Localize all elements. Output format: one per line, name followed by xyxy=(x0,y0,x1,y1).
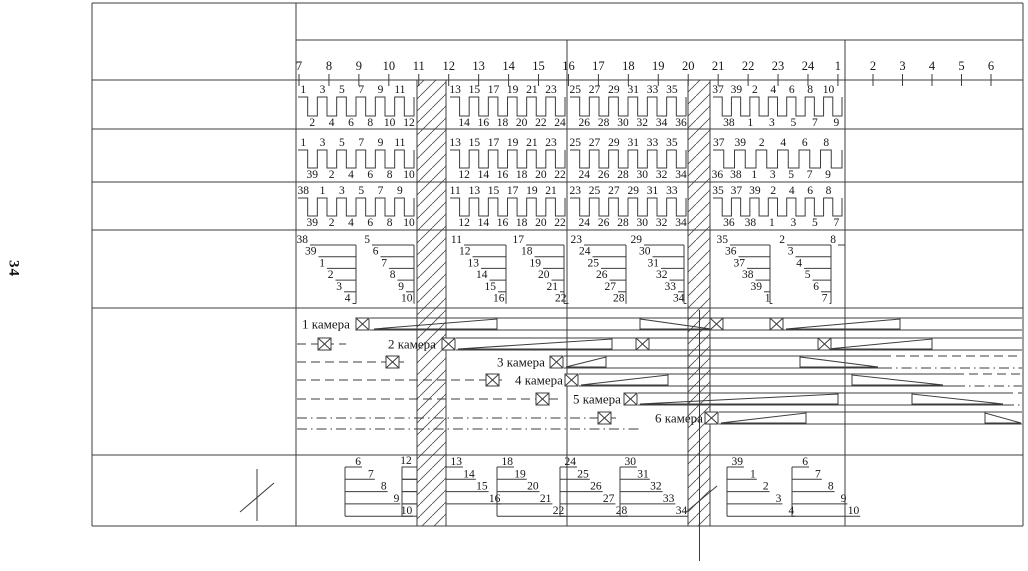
fan-group-number: 17 xyxy=(513,234,525,246)
comb-number-bottom: 34 xyxy=(675,169,687,181)
drawing-canvas: 34 7891011121314151617181920212223241234… xyxy=(0,0,1028,571)
chamber-label: 2 камера xyxy=(388,337,436,352)
comb-number-bottom: 14 xyxy=(478,217,490,229)
ruler-number: 10 xyxy=(383,59,396,73)
comb-number-top: 7 xyxy=(358,84,364,96)
ruler-number: 17 xyxy=(592,59,605,73)
comb-number-top: 13 xyxy=(449,84,461,96)
ruler-number: 7 xyxy=(296,59,302,73)
fan-group-number: 25 xyxy=(588,257,600,269)
bottom-group-number: 1 xyxy=(750,468,756,480)
bottom-group-number: 39 xyxy=(732,456,744,468)
comb-number-top: 17 xyxy=(488,137,500,149)
fan-group-number: 28 xyxy=(613,293,625,305)
ladder-rung xyxy=(402,479,417,491)
bottom-group-number: 32 xyxy=(650,481,662,493)
comb-number-bottom: 12 xyxy=(458,217,470,229)
bottom-group-number: 9 xyxy=(841,493,847,505)
fan-group-number: 4 xyxy=(345,293,351,305)
bottom-group-number: 20 xyxy=(527,481,539,493)
comb-outline xyxy=(570,97,686,116)
fan-group-number: 1 xyxy=(319,257,325,269)
comb-number-bottom: 36 xyxy=(675,117,687,129)
chamber-label: 1 камера xyxy=(302,317,350,332)
bottom-group-number: 34 xyxy=(676,505,688,517)
comb-number-top: 29 xyxy=(627,185,639,197)
technical-drawing: 7891011121314151617181920212223241234561… xyxy=(0,0,1028,571)
comb-number-top: 10 xyxy=(823,84,835,96)
wedge-shape xyxy=(786,319,900,329)
fan-group-number: 6 xyxy=(813,281,819,293)
comb-number-bottom: 7 xyxy=(812,117,818,129)
comb-number-bottom: 9 xyxy=(834,117,840,129)
fan-group-number: 3 xyxy=(336,281,342,293)
comb-number-bottom: 4 xyxy=(348,169,354,181)
comb-number-bottom: 34 xyxy=(656,117,668,129)
comb-number-bottom: 36 xyxy=(712,169,724,181)
comb-number-bottom: 14 xyxy=(478,169,490,181)
comb-number-top: 2 xyxy=(759,137,765,149)
fan-group-number: 7 xyxy=(822,293,828,305)
comb-number-bottom: 5 xyxy=(812,217,818,229)
comb-number-top: 3 xyxy=(320,137,326,149)
comb-number-bottom: 5 xyxy=(788,169,794,181)
chamber-label: 3 камера xyxy=(497,355,545,370)
bottom-group-number: 22 xyxy=(553,505,565,517)
comb-number-bottom: 26 xyxy=(598,217,610,229)
comb-number-bottom: 22 xyxy=(535,117,547,129)
comb-number-top: 25 xyxy=(589,185,601,197)
comb-number-bottom: 10 xyxy=(403,169,415,181)
comb-number-bottom: 32 xyxy=(637,117,649,129)
comb-number-bottom: 12 xyxy=(458,169,470,181)
comb-number-top: 23 xyxy=(569,185,581,197)
comb-number-top: 9 xyxy=(378,84,384,96)
comb-number-bottom: 16 xyxy=(497,169,509,181)
ruler-number: 11 xyxy=(413,59,425,73)
ruler-number: 16 xyxy=(562,59,575,73)
fan-group-number: 31 xyxy=(648,257,660,269)
comb-number-bottom: 4 xyxy=(348,217,354,229)
comb-number-bottom: 2 xyxy=(309,117,315,129)
fan-group-number: 29 xyxy=(631,234,643,246)
comb-number-bottom: 22 xyxy=(554,217,566,229)
ladder-rung xyxy=(402,467,417,479)
bottom-group-number: 4 xyxy=(788,505,794,517)
wedge-shape xyxy=(985,413,1021,423)
comb-number-top: 1 xyxy=(300,84,306,96)
comb-number-top: 33 xyxy=(666,185,678,197)
comb-number-top: 13 xyxy=(449,137,461,149)
comb-number-bottom: 30 xyxy=(617,117,629,129)
comb-number-bottom: 4 xyxy=(329,117,335,129)
comb-number-bottom: 24 xyxy=(579,217,591,229)
comb-number-top: 8 xyxy=(807,84,813,96)
comb-outline xyxy=(450,198,565,216)
comb-number-top: 2 xyxy=(770,185,776,197)
comb-number-top: 5 xyxy=(339,84,345,96)
comb-number-top: 21 xyxy=(526,137,538,149)
fan-group-number: 18 xyxy=(521,246,533,258)
comb-number-top: 7 xyxy=(358,137,364,149)
comb-number-bottom: 5 xyxy=(791,117,797,129)
comb-number-top: 37 xyxy=(731,185,743,197)
bottom-group-number: 16 xyxy=(489,493,501,505)
comb-number-top: 27 xyxy=(589,84,601,96)
ladder-rung xyxy=(402,492,417,504)
fan-group-number: 5 xyxy=(364,234,370,246)
comb-number-bottom: 18 xyxy=(497,117,509,129)
comb-number-top: 33 xyxy=(647,84,659,96)
comb-number-top: 31 xyxy=(627,84,639,96)
comb-number-bottom: 26 xyxy=(579,117,591,129)
bottom-group-number: 2 xyxy=(763,481,769,493)
ruler-number: 19 xyxy=(652,59,665,73)
comb-number-bottom: 18 xyxy=(516,169,528,181)
comb-number-top: 25 xyxy=(569,137,581,149)
comb-number-top: 25 xyxy=(569,84,581,96)
fan-group-number: 38 xyxy=(297,234,309,246)
fan-group-number: 24 xyxy=(579,246,591,258)
comb-outline xyxy=(713,97,842,116)
fan-group-number: 16 xyxy=(493,293,505,305)
wedge-shape xyxy=(800,357,878,367)
bottom-group-number: 24 xyxy=(565,456,577,468)
comb-number-top: 29 xyxy=(608,137,620,149)
hatch-strip xyxy=(417,80,446,526)
comb-outline xyxy=(570,150,686,168)
comb-number-top: 29 xyxy=(608,84,620,96)
comb-number-bottom: 38 xyxy=(723,117,735,129)
wedge-shape xyxy=(566,357,606,367)
comb-number-top: 39 xyxy=(749,185,761,197)
comb-number-bottom: 26 xyxy=(598,169,610,181)
comb-number-bottom: 14 xyxy=(458,117,470,129)
ruler-number: 9 xyxy=(356,59,362,73)
ruler-number: 3 xyxy=(899,59,905,73)
comb-number-top: 13 xyxy=(469,185,481,197)
comb-number-top: 37 xyxy=(712,84,724,96)
wedge-shape xyxy=(828,339,932,349)
fan-group-number: 4 xyxy=(796,257,802,269)
bottom-group-number: 15 xyxy=(476,481,488,493)
comb-number-top: 11 xyxy=(450,185,461,197)
comb-number-bottom: 8 xyxy=(367,117,373,129)
comb-number-top: 6 xyxy=(807,185,813,197)
comb-number-top: 4 xyxy=(789,185,795,197)
ruler-number: 24 xyxy=(802,59,815,73)
comb-number-top: 11 xyxy=(394,84,405,96)
comb-number-top: 7 xyxy=(378,185,384,197)
fan-group-number: 14 xyxy=(476,269,488,281)
comb-outline xyxy=(298,198,414,216)
fan-group-number: 8 xyxy=(390,269,396,281)
comb-outline xyxy=(298,150,414,168)
fan-group-number: 19 xyxy=(530,257,542,269)
bottom-group-number: 18 xyxy=(502,456,514,468)
comb-number-bottom: 16 xyxy=(478,117,490,129)
comb-outline xyxy=(298,97,414,116)
bottom-group-number: 33 xyxy=(663,493,675,505)
comb-number-top: 15 xyxy=(469,84,481,96)
comb-number-top: 21 xyxy=(545,185,557,197)
bottom-group-number: 13 xyxy=(451,456,463,468)
fan-group-number: 21 xyxy=(547,281,559,293)
comb-number-top: 27 xyxy=(589,137,601,149)
fan-group-number: 20 xyxy=(538,269,550,281)
comb-number-top: 1 xyxy=(320,185,326,197)
bottom-group-number: 8 xyxy=(828,481,834,493)
fan-group-number: 38 xyxy=(742,269,754,281)
fan-group-number: 11 xyxy=(451,234,462,246)
comb-number-bottom: 10 xyxy=(403,217,415,229)
comb-number-top: 15 xyxy=(488,185,500,197)
comb-number-top: 33 xyxy=(647,137,659,149)
bottom-group-number: 28 xyxy=(616,505,628,517)
bottom-group-number: 7 xyxy=(815,468,821,480)
ruler-number: 5 xyxy=(958,59,964,73)
ruler-number: 6 xyxy=(988,59,994,73)
comb-number-bottom: 1 xyxy=(751,169,757,181)
bottom-group-number: 7 xyxy=(368,468,374,480)
comb-number-bottom: 10 xyxy=(384,117,396,129)
bottom-group-number: 19 xyxy=(514,468,526,480)
comb-number-top: 5 xyxy=(358,185,364,197)
comb-number-bottom: 20 xyxy=(535,169,547,181)
comb-number-bottom: 24 xyxy=(579,169,591,181)
fan-group-number: 32 xyxy=(656,269,668,281)
fan-group-number: 3 xyxy=(788,246,794,258)
comb-number-top: 17 xyxy=(507,185,519,197)
comb-number-bottom: 2 xyxy=(329,217,335,229)
ruler-number: 15 xyxy=(532,59,545,73)
comb-number-bottom: 1 xyxy=(769,217,775,229)
comb-outline xyxy=(713,150,842,168)
comb-number-bottom: 7 xyxy=(834,217,840,229)
comb-number-top: 6 xyxy=(789,84,795,96)
comb-number-top: 1 xyxy=(300,137,306,149)
comb-number-top: 27 xyxy=(608,185,620,197)
comb-number-bottom: 30 xyxy=(637,217,649,229)
comb-number-bottom: 6 xyxy=(367,169,373,181)
comb-number-bottom: 22 xyxy=(554,169,566,181)
bottom-group-number: 25 xyxy=(577,468,589,480)
bottom-group-number: 26 xyxy=(590,481,602,493)
comb-outline xyxy=(450,150,565,168)
bottom-group-number: 9 xyxy=(394,493,400,505)
chamber-label: 4 камера xyxy=(515,373,563,388)
page-number-label: 34 xyxy=(5,256,22,282)
comb-number-top: 38 xyxy=(297,185,309,197)
comb-number-top: 3 xyxy=(320,84,326,96)
bottom-group-number: 27 xyxy=(603,493,615,505)
fan-group-number: 23 xyxy=(571,234,583,246)
comb-number-bottom: 9 xyxy=(825,169,831,181)
comb-number-bottom: 32 xyxy=(656,169,668,181)
wedge-shape xyxy=(721,413,806,423)
fan-group-number: 9 xyxy=(398,281,404,293)
fan-group-number: 27 xyxy=(605,281,617,293)
comb-number-top: 39 xyxy=(731,84,743,96)
comb-number-top: 35 xyxy=(666,84,678,96)
comb-number-top: 11 xyxy=(394,137,405,149)
ruler-number: 20 xyxy=(682,59,695,73)
comb-number-top: 9 xyxy=(378,137,384,149)
wedge-shape xyxy=(458,339,612,349)
ladder-label: 12 xyxy=(400,455,412,467)
chamber-label: 6 камера xyxy=(655,411,703,426)
comb-number-top: 19 xyxy=(526,185,538,197)
comb-outline xyxy=(713,198,842,216)
comb-number-bottom: 3 xyxy=(791,217,797,229)
comb-number-top: 8 xyxy=(826,185,832,197)
comb-number-top: 19 xyxy=(507,84,519,96)
comb-number-bottom: 6 xyxy=(348,117,354,129)
comb-number-bottom: 38 xyxy=(730,169,742,181)
fan-group-number: 15 xyxy=(485,281,497,293)
comb-number-bottom: 12 xyxy=(403,117,415,129)
comb-number-bottom: 38 xyxy=(745,217,757,229)
comb-number-bottom: 28 xyxy=(598,117,610,129)
fan-group-number: 39 xyxy=(751,281,763,293)
comb-number-top: 35 xyxy=(666,137,678,149)
comb-number-bottom: 32 xyxy=(656,217,668,229)
comb-number-top: 17 xyxy=(488,84,500,96)
fan-group-number: 8 xyxy=(830,234,836,246)
wedge-shape xyxy=(912,394,1003,404)
fan-group-number: 10 xyxy=(401,293,413,305)
comb-number-top: 31 xyxy=(627,137,639,149)
ruler-number: 14 xyxy=(502,59,515,73)
comb-number-top: 5 xyxy=(339,137,345,149)
fan-group-number: 33 xyxy=(665,281,677,293)
fan-group-number: 6 xyxy=(373,246,379,258)
fan-group-number: 12 xyxy=(459,246,471,258)
comb-number-bottom: 28 xyxy=(617,217,629,229)
bottom-group-number: 30 xyxy=(625,456,637,468)
bottom-group-number: 21 xyxy=(540,493,552,505)
comb-outline xyxy=(450,97,565,116)
ruler-number: 2 xyxy=(870,59,876,73)
comb-number-bottom: 24 xyxy=(554,117,566,129)
fan-group-number: 13 xyxy=(468,257,480,269)
ruler-number: 8 xyxy=(326,59,332,73)
comb-number-top: 23 xyxy=(545,137,557,149)
comb-number-top: 23 xyxy=(545,84,557,96)
comb-number-top: 37 xyxy=(713,137,725,149)
comb-number-top: 35 xyxy=(712,185,724,197)
fan-group-number: 22 xyxy=(555,293,567,305)
ruler-number: 12 xyxy=(442,59,455,73)
ruler-number: 1 xyxy=(835,59,841,73)
bottom-group-number: 31 xyxy=(637,468,649,480)
comb-outline xyxy=(570,198,686,216)
ruler-number: 18 xyxy=(622,59,635,73)
comb-number-top: 4 xyxy=(780,137,786,149)
bottom-group-number: 6 xyxy=(355,456,361,468)
comb-number-top: 6 xyxy=(802,137,808,149)
ruler-number: 13 xyxy=(472,59,485,73)
comb-number-bottom: 39 xyxy=(307,217,319,229)
comb-number-bottom: 1 xyxy=(748,117,754,129)
fan-group-number: 37 xyxy=(734,257,746,269)
comb-number-bottom: 18 xyxy=(516,217,528,229)
wedge-shape xyxy=(640,394,838,404)
ruler-number: 23 xyxy=(772,59,785,73)
comb-number-bottom: 7 xyxy=(807,169,813,181)
bottom-group-number: 3 xyxy=(776,493,782,505)
fan-group-number: 30 xyxy=(639,246,651,258)
comb-number-bottom: 20 xyxy=(535,217,547,229)
comb-number-top: 21 xyxy=(526,84,538,96)
comb-number-bottom: 20 xyxy=(516,117,528,129)
wedge-shape xyxy=(581,375,668,385)
comb-number-bottom: 8 xyxy=(387,169,393,181)
comb-number-bottom: 8 xyxy=(387,217,393,229)
fan-group-number: 7 xyxy=(381,257,387,269)
comb-number-top: 19 xyxy=(507,137,519,149)
comb-number-top: 31 xyxy=(647,185,659,197)
comb-number-bottom: 6 xyxy=(367,217,373,229)
fan-group-number: 34 xyxy=(673,293,685,305)
fan-group-number: 26 xyxy=(596,269,608,281)
chamber-label: 5 камера xyxy=(573,392,621,407)
bottom-group-number: 8 xyxy=(381,481,387,493)
comb-number-top: 3 xyxy=(339,185,345,197)
fan-group-number: 35 xyxy=(717,234,729,246)
fan-group-number: 2 xyxy=(328,269,334,281)
comb-number-top: 4 xyxy=(770,84,776,96)
bottom-group-number: 10 xyxy=(848,505,860,517)
ruler-number: 21 xyxy=(712,59,725,73)
comb-number-top: 2 xyxy=(752,84,758,96)
comb-number-bottom: 28 xyxy=(617,169,629,181)
comb-number-top: 15 xyxy=(469,137,481,149)
fan-group-number: 39 xyxy=(305,246,317,258)
bottom-group-number: 6 xyxy=(802,456,808,468)
ruler-number: 4 xyxy=(929,59,936,73)
comb-number-bottom: 36 xyxy=(723,217,735,229)
bottom-group-number: 14 xyxy=(463,468,475,480)
comb-number-bottom: 3 xyxy=(769,117,775,129)
fan-group-number: 36 xyxy=(725,246,737,258)
comb-number-bottom: 2 xyxy=(329,169,335,181)
comb-number-top: 9 xyxy=(397,185,403,197)
comb-number-bottom: 3 xyxy=(770,169,776,181)
comb-number-top: 8 xyxy=(823,137,829,149)
fan-group-number: 2 xyxy=(779,234,785,246)
comb-number-top: 39 xyxy=(735,137,747,149)
wedge-shape xyxy=(852,375,943,385)
comb-number-bottom: 30 xyxy=(637,169,649,181)
ruler-number: 22 xyxy=(742,59,755,73)
comb-number-bottom: 39 xyxy=(307,169,319,181)
comb-number-bottom: 34 xyxy=(675,217,687,229)
comb-number-bottom: 16 xyxy=(497,217,509,229)
fan-group-number: 5 xyxy=(805,269,811,281)
